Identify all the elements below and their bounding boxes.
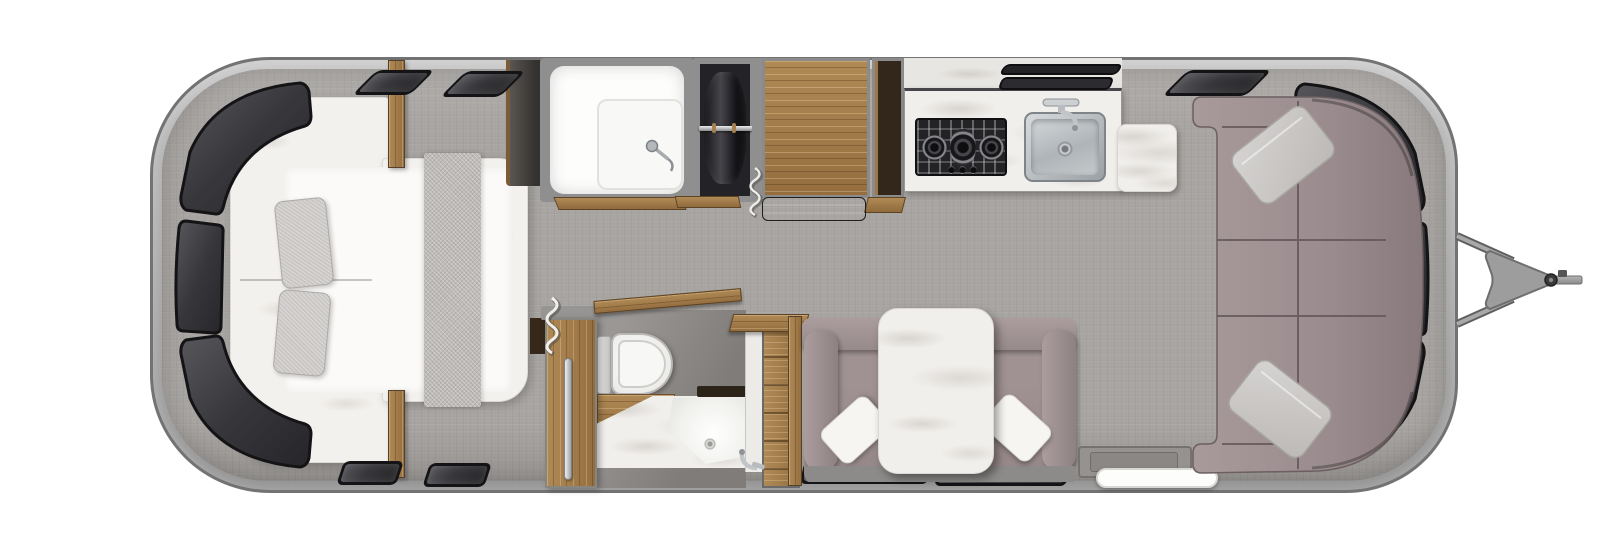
bed-pillow <box>274 197 335 290</box>
cooktop-knob <box>970 166 977 173</box>
dresser-cabinet <box>762 58 870 198</box>
side-table <box>1117 124 1177 192</box>
side-window <box>336 461 404 485</box>
hitch-coupler-icon <box>1545 274 1557 286</box>
cabinet-step-mat <box>762 197 866 221</box>
bed-pillow <box>272 289 331 377</box>
hanger-hook <box>732 123 736 133</box>
cooktop-knob <box>948 166 955 173</box>
toe-kick-step <box>675 196 742 208</box>
entry-grab-handle <box>1096 468 1218 488</box>
hitch-coupler-pin <box>1549 278 1553 282</box>
basin-drain-icon <box>704 438 716 450</box>
toe-kick-step <box>553 197 686 210</box>
hitch-triangle <box>1486 251 1553 309</box>
dinette-bolster-right <box>1042 330 1076 470</box>
burner-icon <box>922 135 947 160</box>
closet-rod <box>699 126 753 131</box>
burner-icon <box>950 128 976 167</box>
hitch-bar <box>1457 299 1513 324</box>
dinette-side-panel <box>788 316 802 486</box>
hitch-tongue <box>1554 276 1582 284</box>
toe-kick-step <box>864 197 906 213</box>
burner-icon <box>979 135 1004 160</box>
pantry-cabinet <box>872 58 904 198</box>
dinette-table <box>878 308 994 474</box>
bath-cabinet-marble-edge <box>745 328 762 472</box>
wardrobe-door-jamb <box>752 58 762 202</box>
door-handle-icon <box>564 358 572 480</box>
cooktop-knob <box>959 166 966 173</box>
hitch-bar-outline <box>1457 299 1513 324</box>
galley-window-upper <box>999 64 1123 75</box>
toilet-tank <box>597 336 611 394</box>
side-window <box>422 463 492 487</box>
hitch-bar-outline <box>1457 236 1513 261</box>
floorplan-canvas <box>0 0 1600 558</box>
hanger-hook <box>712 123 716 133</box>
galley-window-lower <box>998 77 1115 90</box>
bathroom-door-opening <box>530 318 545 354</box>
hitch-jack <box>1558 270 1567 277</box>
cooktop <box>915 118 1007 176</box>
bed-runner <box>424 153 481 407</box>
shower-pan <box>597 99 683 190</box>
hitch-bar <box>1457 236 1513 261</box>
sink-drain-icon <box>1057 141 1073 157</box>
tow-hitch <box>1457 236 1582 324</box>
